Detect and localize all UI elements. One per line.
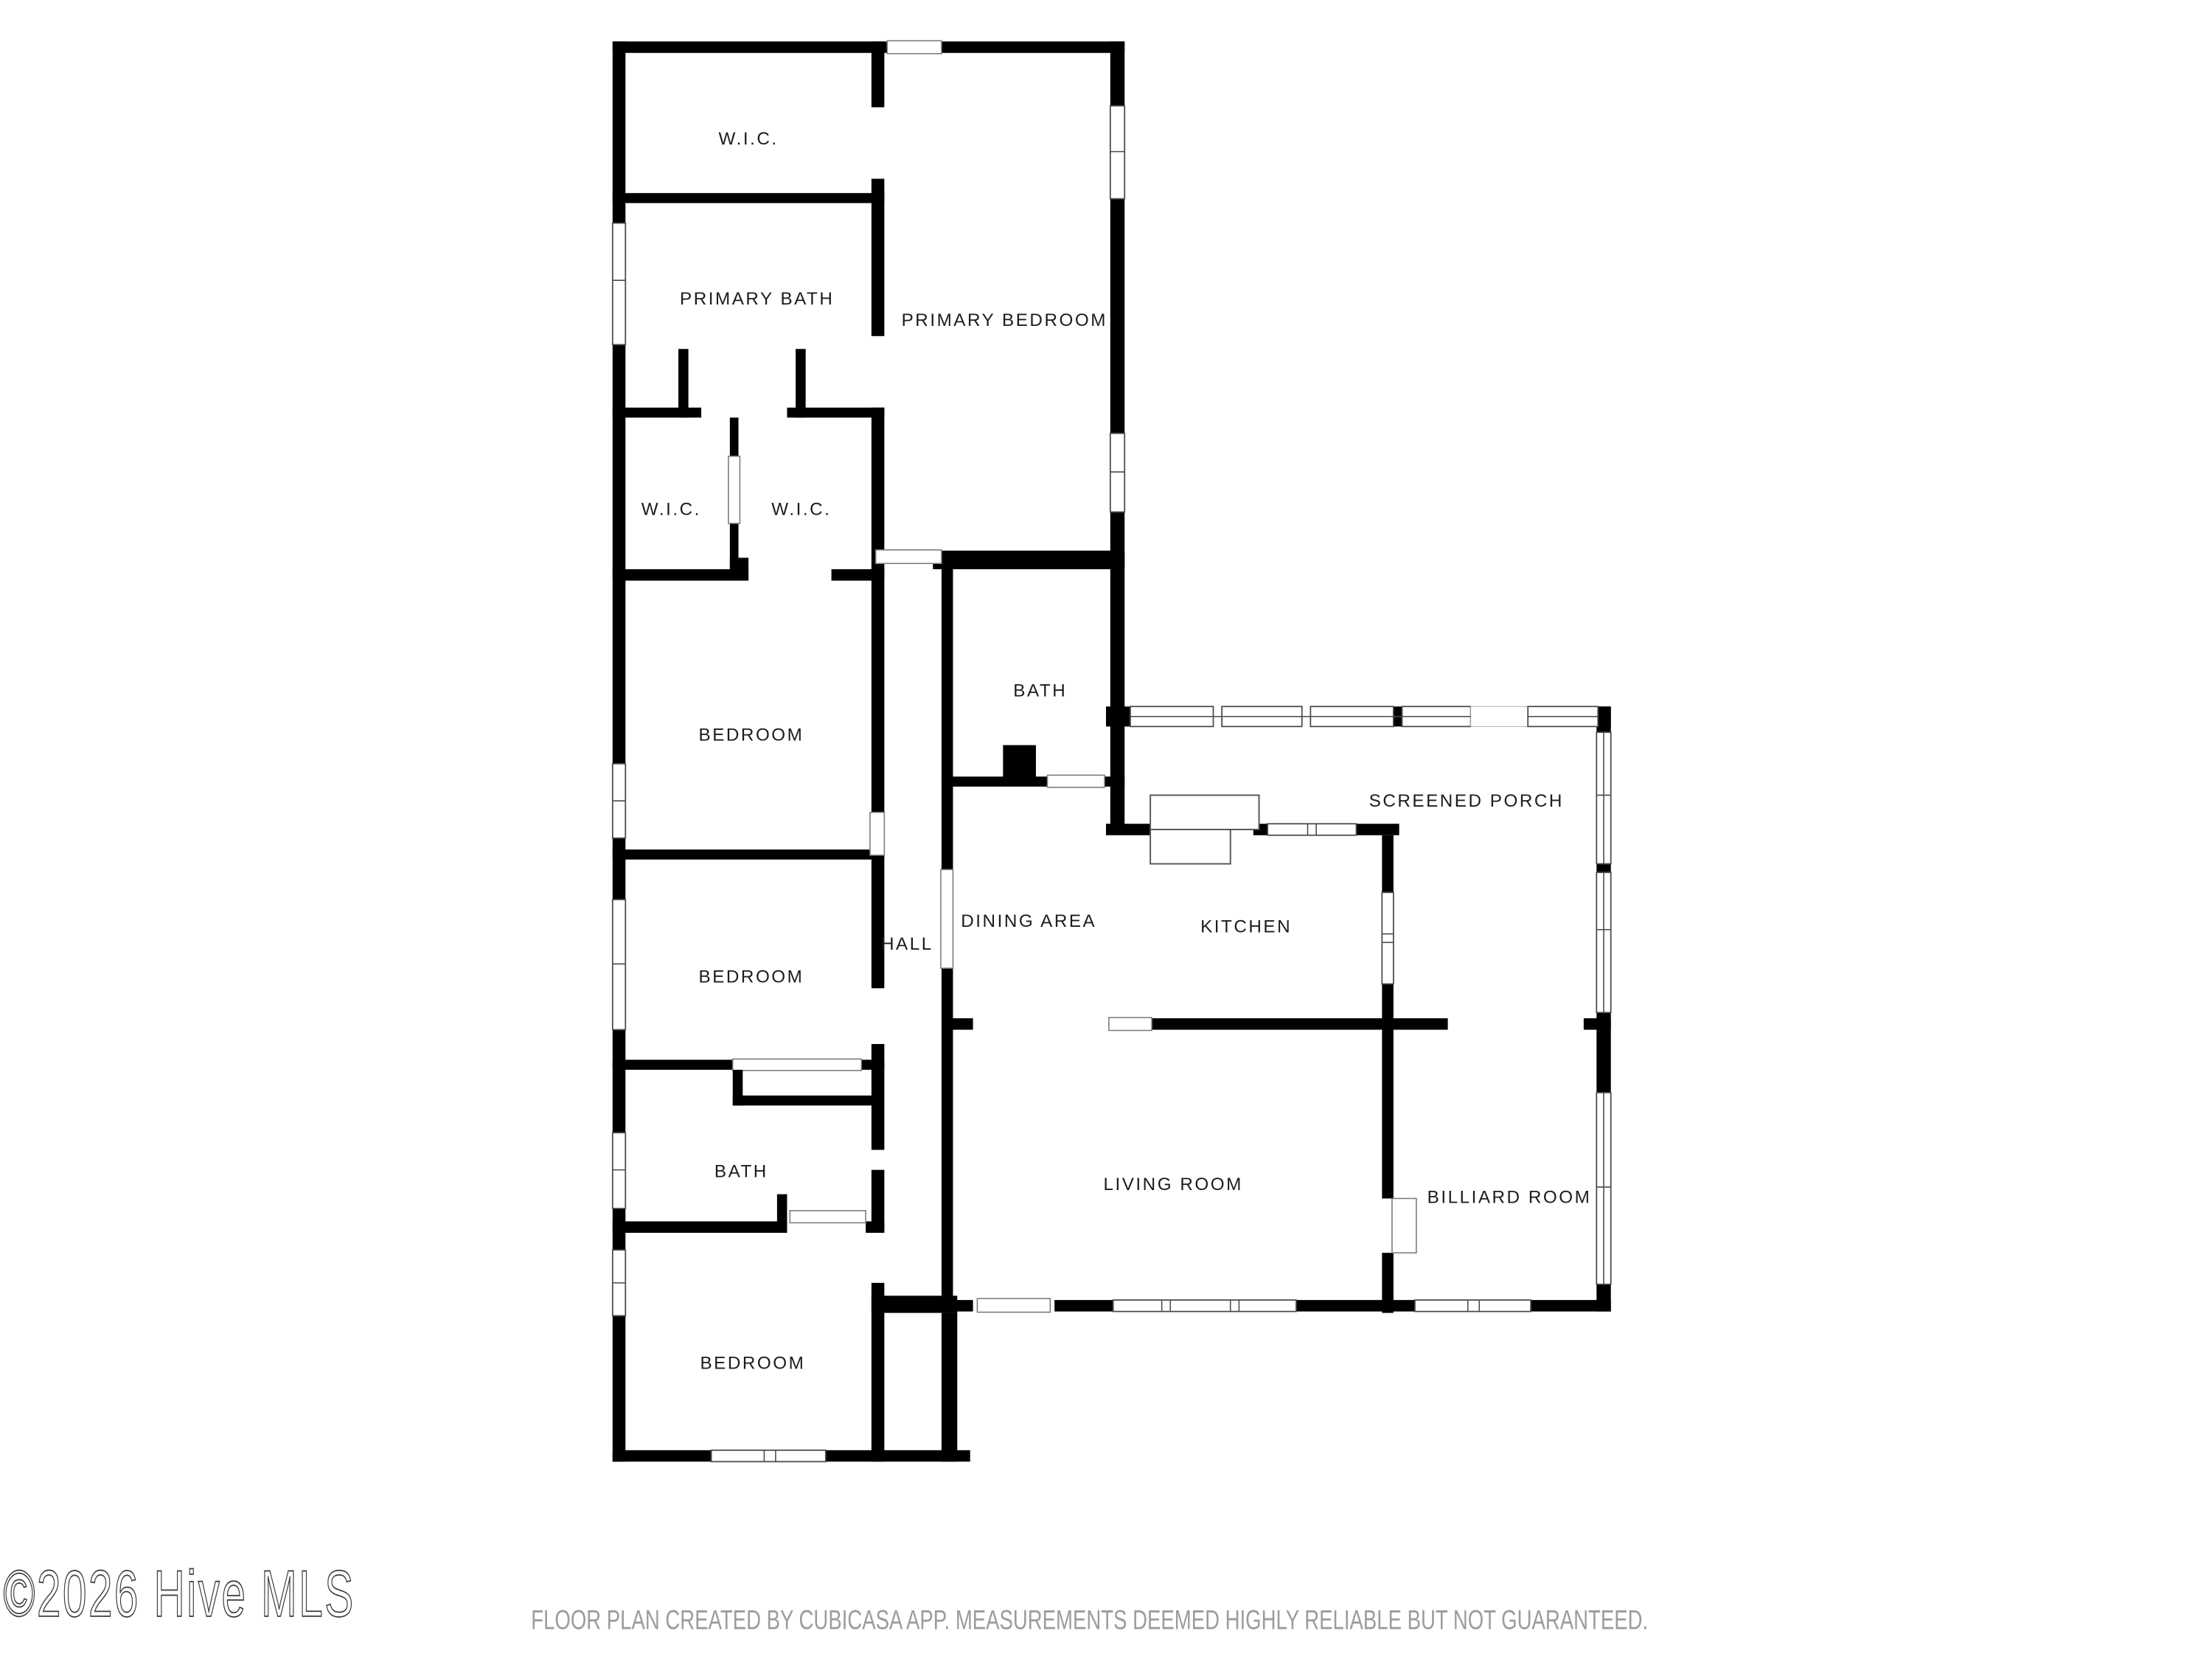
room-label-primary-bedroom: PRIMARY BEDROOM [902, 310, 1107, 330]
window [613, 900, 625, 1030]
porch-opening [1471, 706, 1528, 726]
room-label-dining-area: DINING AREA [961, 911, 1096, 931]
door-living-billiard [1392, 1198, 1416, 1253]
wall-segment [942, 563, 953, 869]
door-bath2-bedroom3 [790, 1211, 866, 1222]
room-label-bath-2: BATH [714, 1161, 768, 1181]
room-label-screened-porch: SCREENED PORCH [1369, 791, 1564, 811]
door-bedroom1-hall [870, 813, 884, 855]
watermark: ©2026 Hive MLS [4, 1557, 355, 1630]
kitchen-counter [1150, 829, 1231, 864]
wall-segment [942, 1313, 957, 1462]
window [613, 223, 625, 345]
wall-segment [613, 569, 748, 581]
doors [728, 41, 1416, 1312]
wall-segment [1152, 1018, 1394, 1030]
wall-segment [613, 1030, 625, 1133]
door-living-exterior [977, 1298, 1050, 1312]
wall-segment [872, 1170, 884, 1230]
wall-segment [872, 855, 884, 988]
window [1267, 824, 1356, 835]
wall-segment [1296, 1300, 1415, 1312]
wall-segment [1394, 1018, 1448, 1030]
wall-segment [1110, 41, 1124, 105]
wall-segment [1054, 1300, 1113, 1312]
kitchen-counter [1150, 795, 1259, 829]
room-label-bedroom-3: BEDROOM [700, 1353, 805, 1373]
room-label-wic-left: W.I.C. [641, 499, 701, 519]
wall-segment [730, 524, 739, 581]
room-label-kitchen: KITCHEN [1200, 917, 1292, 937]
wall-segment [942, 1018, 973, 1030]
window [1415, 1300, 1531, 1312]
door-bath-middle [1047, 775, 1105, 787]
window [712, 1450, 826, 1462]
wall-segment [1382, 984, 1394, 1198]
wall-segment [730, 417, 739, 456]
wall-segment [1596, 706, 1610, 732]
wall-segment [613, 1315, 625, 1461]
wall-segment [613, 849, 885, 860]
window [1113, 1300, 1296, 1312]
exterior-walls [613, 41, 1611, 1461]
wall-segment [613, 344, 625, 763]
wall-segment [1356, 824, 1399, 835]
wall-segment [872, 408, 884, 813]
door-hall-dining [941, 869, 953, 968]
window [1110, 434, 1124, 512]
footer-disclaimer: FLOOR PLAN CREATED BY CUBICASA APP. MEAS… [531, 1604, 1648, 1635]
floor-plan-svg: W.I.C. PRIMARY BATH PRIMARY BEDROOM W.I.… [0, 0, 2212, 1659]
wall-segment [1106, 824, 1153, 835]
wall-segment [1382, 1253, 1394, 1312]
wall-segment [613, 838, 625, 900]
window [1382, 892, 1394, 984]
wall-segment [613, 1060, 733, 1070]
wall-segment [832, 569, 885, 581]
wall-stub [777, 1194, 787, 1228]
wall-segment [1584, 1018, 1611, 1030]
wall-segment [861, 1060, 884, 1070]
door-dining-living [1109, 1018, 1152, 1030]
fixtures [678, 349, 1259, 1227]
room-label-bath-middle: BATH [1013, 681, 1067, 701]
window [1110, 106, 1124, 199]
wall-segment [933, 551, 1124, 569]
room-label-hall: HALL [881, 934, 933, 954]
wall-segment [1110, 199, 1124, 434]
wall-segment [613, 1450, 712, 1462]
toilet [1003, 745, 1036, 779]
wall-segment [613, 193, 885, 204]
wall-segment [613, 1221, 787, 1233]
wall-segment [872, 41, 884, 107]
wall-segment [942, 776, 1048, 787]
shower-stall-wall [733, 1096, 876, 1106]
wall-segment [613, 41, 890, 53]
room-label-wic-top: W.I.C. [719, 129, 779, 149]
wall-segment [939, 41, 1124, 53]
room-label-living-room: LIVING ROOM [1103, 1175, 1242, 1194]
door-bedroom2-bath2 [733, 1059, 862, 1071]
room-label-primary-bath: PRIMARY BATH [680, 289, 834, 309]
room-label-bedroom-2: BEDROOM [699, 967, 804, 987]
room-label-wic-right: W.I.C. [771, 499, 831, 519]
wall-segment [866, 1221, 884, 1233]
room-label-bedroom-1: BEDROOM [699, 726, 804, 745]
room-label-billiard-room: BILLIARD ROOM [1427, 1187, 1592, 1207]
wall-segment [1531, 1300, 1611, 1312]
wall-segment [872, 1283, 884, 1461]
bath-partition [796, 349, 806, 417]
door-entry-top [887, 41, 942, 53]
door-wic-divider [728, 456, 740, 524]
floor-plan-page: W.I.C. PRIMARY BATH PRIMARY BEDROOM W.I.… [0, 0, 2212, 1659]
bath-partition [678, 349, 689, 417]
window [613, 1133, 625, 1208]
door-primary-bedroom-hall [876, 550, 942, 563]
wall-segment [1105, 776, 1124, 787]
wall-segment [1106, 706, 1130, 726]
wall-segment [1596, 864, 1610, 873]
wall-segment [1382, 835, 1394, 893]
